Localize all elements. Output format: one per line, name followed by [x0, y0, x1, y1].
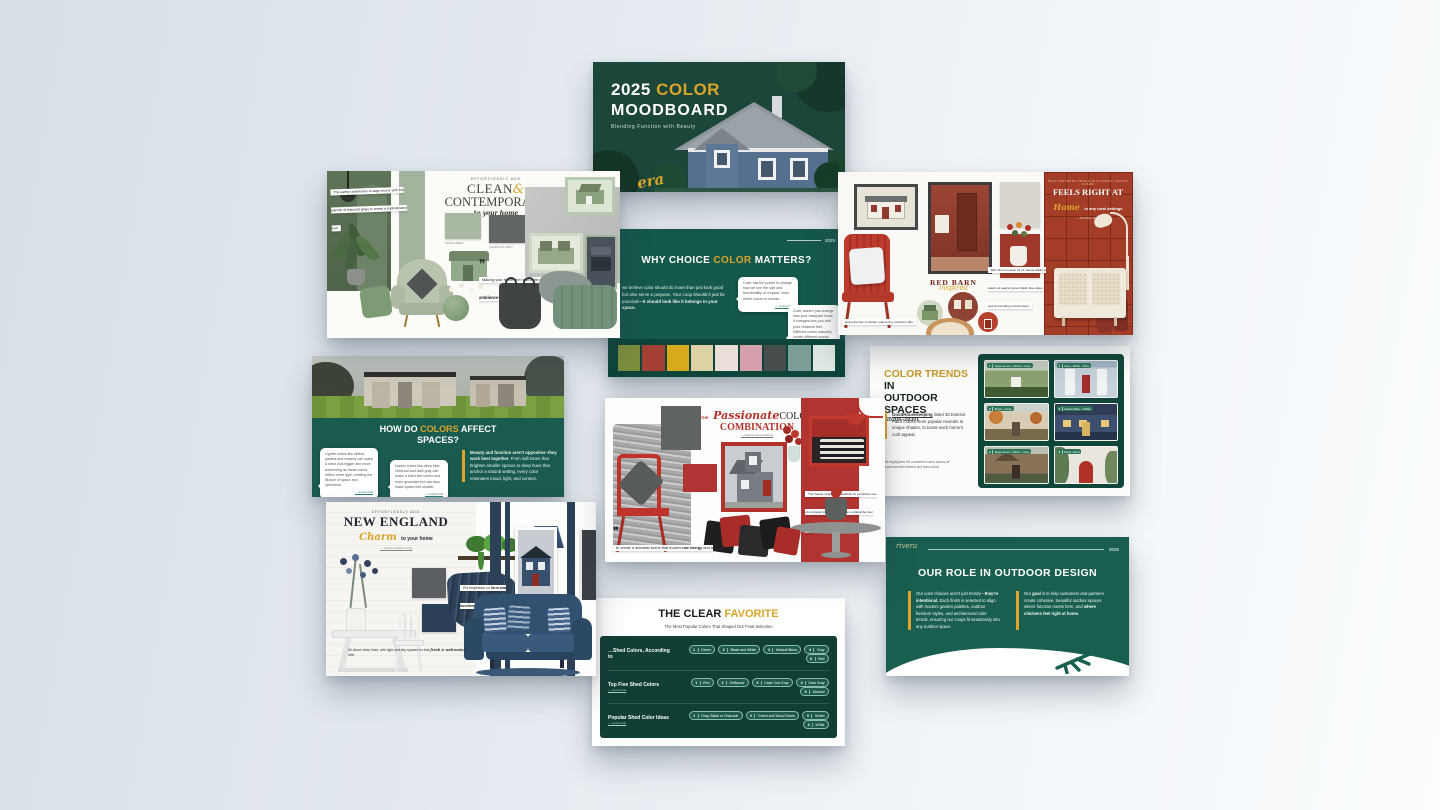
swatch-charcoal-label: CHARCOAL GRAY: [489, 245, 513, 249]
year-rule: 2025: [928, 547, 1119, 552]
favorite-row: Top Five Shed Colors — source link 1Red …: [608, 671, 829, 704]
circle-photo-barn: [978, 312, 998, 332]
how-title: HOW DO COLORS AFFECT SPACES?: [312, 424, 564, 445]
color-pill: 5Almond: [800, 687, 829, 696]
barn-title: FEELS RIGHT AT: [1048, 187, 1128, 197]
house-photo-5: 5Sage Green + Brick + Gray: [984, 446, 1049, 484]
trends-note: We highlighted the consistent colors acr…: [884, 460, 968, 470]
vase-graphic: [443, 295, 469, 321]
pillow-graphic: [359, 285, 393, 319]
framed-shed-photo: [854, 184, 918, 230]
house-photo-1: 1Sage Green + Wood + Gray: [984, 360, 1049, 398]
barn-title-rest: in any rural settings: [1084, 206, 1122, 211]
navy-sofa-graphic: [464, 594, 592, 672]
favorite-subtitle: The Most Popular Colors That Shaped Our …: [592, 624, 845, 629]
quote-mark-icon: ❞: [613, 530, 713, 536]
slide-our-role: rivera 2025 OUR ROLE IN OUTDOOR DESIGN O…: [886, 537, 1129, 676]
papasan-chair-graphic: [924, 318, 976, 335]
white-pillow-graphic: [849, 247, 885, 285]
color-pill: 2Driftwood: [717, 678, 749, 687]
moodboard-collage: 2025 COLOR MOODBOARD Blending Function w…: [0, 0, 1440, 810]
ne-brand: fresh & welcoming: [430, 648, 466, 652]
color-pill: 4Dark Gray: [796, 678, 829, 687]
pillow-stack-graphic: [705, 516, 797, 560]
title-moodboard: MOODBOARD: [611, 102, 728, 120]
palette-swatch: [618, 345, 640, 371]
favorite-panel: …Shed Colors, According to 1Green 2Black…: [600, 636, 837, 738]
clean-title-a: CLEAN: [467, 181, 513, 196]
quote-mark-icon: ❞: [479, 261, 589, 268]
ne-credit: — Inspire Coastal Living: [336, 546, 456, 550]
framed-house-photo: [565, 177, 615, 215]
flowers-graphic: [447, 283, 487, 297]
note-chip: The earthy undertones of sage source wit…: [330, 178, 416, 235]
ourrole-title: OUR ROLE IN OUTDOOR DESIGN: [886, 567, 1129, 579]
gold-bar: [1016, 591, 1019, 630]
branch-illustration: [1027, 648, 1101, 674]
framed-red-room-photo: [928, 182, 992, 274]
ne-bottom-text: All about clean lines, with light and ai…: [348, 648, 468, 658]
why-year: 2025: [825, 238, 835, 243]
slide-how-colors: HOW DO COLORS AFFECT SPACES? Lighter col…: [312, 356, 564, 497]
row-label: …Shed Colors, According to: [608, 648, 674, 660]
red-barn-label: RED BARN inspired: [930, 278, 977, 292]
bubble-source-link: — source link: [395, 492, 443, 496]
why-body: we believe color should do more than jus…: [622, 285, 726, 312]
armchair-graphic: [391, 259, 453, 329]
house-photo-3: 3Beige + Gray: [984, 403, 1049, 441]
color-pill: 4Gray: [804, 645, 829, 654]
slide-red-barn: BOLD AND RETRO DESIGN AN AUTHENTIC RUSTI…: [838, 172, 1133, 335]
favorite-title: THE CLEAR FAVORITE: [592, 608, 845, 620]
house-photo-6: 6Sand + Red: [1054, 446, 1119, 484]
bubble-source-link: — source link: [743, 304, 793, 308]
row-source-link: — source link: [608, 721, 673, 725]
row-source-link: — source link: [608, 688, 673, 692]
photo-label: 2Teal + White + Blue: [1057, 363, 1092, 368]
ne-script: Charm: [359, 532, 397, 543]
ourrole-columns: Our color choices aren't just trendy—the…: [908, 591, 1108, 630]
highlight-block: Beauty and function aren't opposites–the…: [462, 450, 558, 482]
framed-house-photo: [721, 442, 787, 512]
year-rule: 2025: [787, 238, 835, 243]
photo-label: 6Sand + Red: [1057, 449, 1082, 454]
photo-label: 3Beige + Gray: [987, 406, 1014, 411]
why-title-gold: COLOR: [713, 255, 751, 266]
color-pill: 3Green: [802, 711, 829, 720]
cane-sideboard-graphic: [1054, 268, 1126, 318]
house-photo-4: 4Classic Blue + White: [1054, 403, 1119, 441]
barn-quote: Barn Red is known for its natural abilit…: [988, 258, 1048, 312]
swatch-charcoal: [489, 215, 527, 243]
color-pill: 1Red: [691, 678, 714, 687]
the-word: The: [701, 415, 709, 420]
white-chair-graphic: [390, 610, 428, 674]
photo-label: 5Sage Green + Brick + Gray: [987, 449, 1031, 454]
shed-photo: [312, 356, 564, 418]
red-flowers-graphic: [781, 426, 807, 466]
bubble-source-link: — source link: [325, 490, 373, 494]
trends-body: GoodHousekeeping listed 30 Exterior Pain…: [884, 412, 972, 439]
speech-bubble-2: Darker colors like deep blue, charcoal a…: [390, 460, 448, 497]
basket-graphic: [499, 283, 541, 329]
title-year: 2025: [611, 80, 651, 99]
slide-new-england: effortlessly add NEW ENGLAND Charm to yo…: [326, 502, 596, 676]
barn-script: Home: [1054, 202, 1080, 212]
palette-swatch: [764, 345, 786, 371]
color-pill: 2Green and Wood Tones: [746, 711, 800, 720]
ne-title-block: effortlessly add NEW ENGLAND Charm to yo…: [336, 510, 456, 550]
photo-label: 1Sage Green + Wood + Gray: [987, 363, 1033, 368]
slide-why-color-matters: 2025 WHY CHOICE COLOR MATTERS? we believ…: [608, 229, 845, 377]
why-title: WHY CHOICE COLOR MATTERS?: [608, 255, 845, 266]
rug-graphic: [476, 668, 580, 676]
ne-sub: to your home: [401, 536, 433, 542]
title-text-block: 2025 COLOR MOODBOARD Blending Function w…: [611, 80, 728, 130]
plant-pot-graphic: [825, 498, 847, 520]
tulip-table-graphic: [791, 514, 881, 560]
favorite-row: …Shed Colors, According to 1Green 2Black…: [608, 638, 829, 671]
wall-lamp-graphic: [847, 402, 883, 432]
slide-color-trends: COLOR TRENDS IN OUTDOOR SPACES (2020s–20…: [870, 346, 1130, 496]
partial-frame-photo: [579, 530, 596, 600]
brand-script-logo: rivera: [896, 542, 917, 550]
color-pill: 3Neutral Blues: [763, 645, 801, 654]
passionate-script: Passionate: [713, 409, 779, 422]
palette-swatch: [667, 345, 689, 371]
color-pill: 4White: [803, 720, 829, 729]
title-color-word: COLOR: [656, 80, 720, 99]
slide-clean-contemporary: The earthy undertones of sage source wit…: [327, 171, 620, 338]
flowers-graphic: [1003, 222, 1043, 248]
palette-swatch: [715, 345, 737, 371]
ourrole-col1: Our color choices aren't just trendy—the…: [908, 591, 1000, 630]
photo-label: 4Classic Blue + White: [1057, 406, 1093, 411]
barn-tagline: BOLD AND RETRO DESIGN AN AUTHENTIC RUSTI…: [1048, 180, 1128, 186]
blue-flowers-graphic: [334, 554, 386, 610]
color-pill: 2Black and White: [718, 645, 760, 654]
gray-swatch: [412, 568, 446, 598]
color-pill: 3Cape Cod Gray: [752, 678, 793, 687]
palette-swatch: [691, 345, 713, 371]
gold-bar: [462, 450, 465, 482]
ourrole-col2: Our goal is to help customers and partne…: [1016, 591, 1108, 630]
color-pill: 5Red: [806, 654, 829, 663]
barn-note: giving the barn a vibrant, welcoming rur…: [842, 310, 918, 328]
slide-passionate: The PassionateCOLOR COMBINATION — interi…: [605, 398, 885, 562]
pouf-graphic: [553, 285, 617, 329]
title-subtitle: Blending Function with Beauty: [611, 124, 728, 130]
slide-clear-favorite: THE CLEAR FAVORITE The Most Popular Colo…: [592, 598, 845, 746]
palette-swatch: [642, 345, 664, 371]
gold-bar: [908, 591, 911, 630]
palette-swatch: [788, 345, 810, 371]
palette-band: [608, 339, 845, 377]
passionate-quote: ❞ to create a dramatic scene that evokes…: [613, 530, 713, 562]
charcoal-swatch: [661, 406, 701, 450]
color-pill: 1Gray, Black or Charcoal: [689, 711, 743, 720]
favorite-row: Popular Shed Color Ideas — source link 1…: [608, 704, 829, 736]
palette-swatch: [740, 345, 762, 371]
ourrole-year: 2025: [1109, 547, 1119, 552]
swatch-sage: [445, 213, 481, 239]
slide-title: 2025 COLOR MOODBOARD Blending Function w…: [593, 62, 845, 192]
house-photo-2: 2Teal + White + Blue: [1054, 360, 1119, 398]
palette-swatch: [813, 345, 835, 371]
photo-grid-panel: 1Sage Green + Wood + Gray 2Teal + White …: [978, 354, 1124, 488]
color-pill: 1Green: [689, 645, 716, 654]
speech-bubble-1: Lighter colors like whites, pastels and …: [320, 448, 378, 497]
swatch-sage-label: SAGE GREEN: [445, 241, 464, 245]
red-swatch: [683, 464, 717, 492]
